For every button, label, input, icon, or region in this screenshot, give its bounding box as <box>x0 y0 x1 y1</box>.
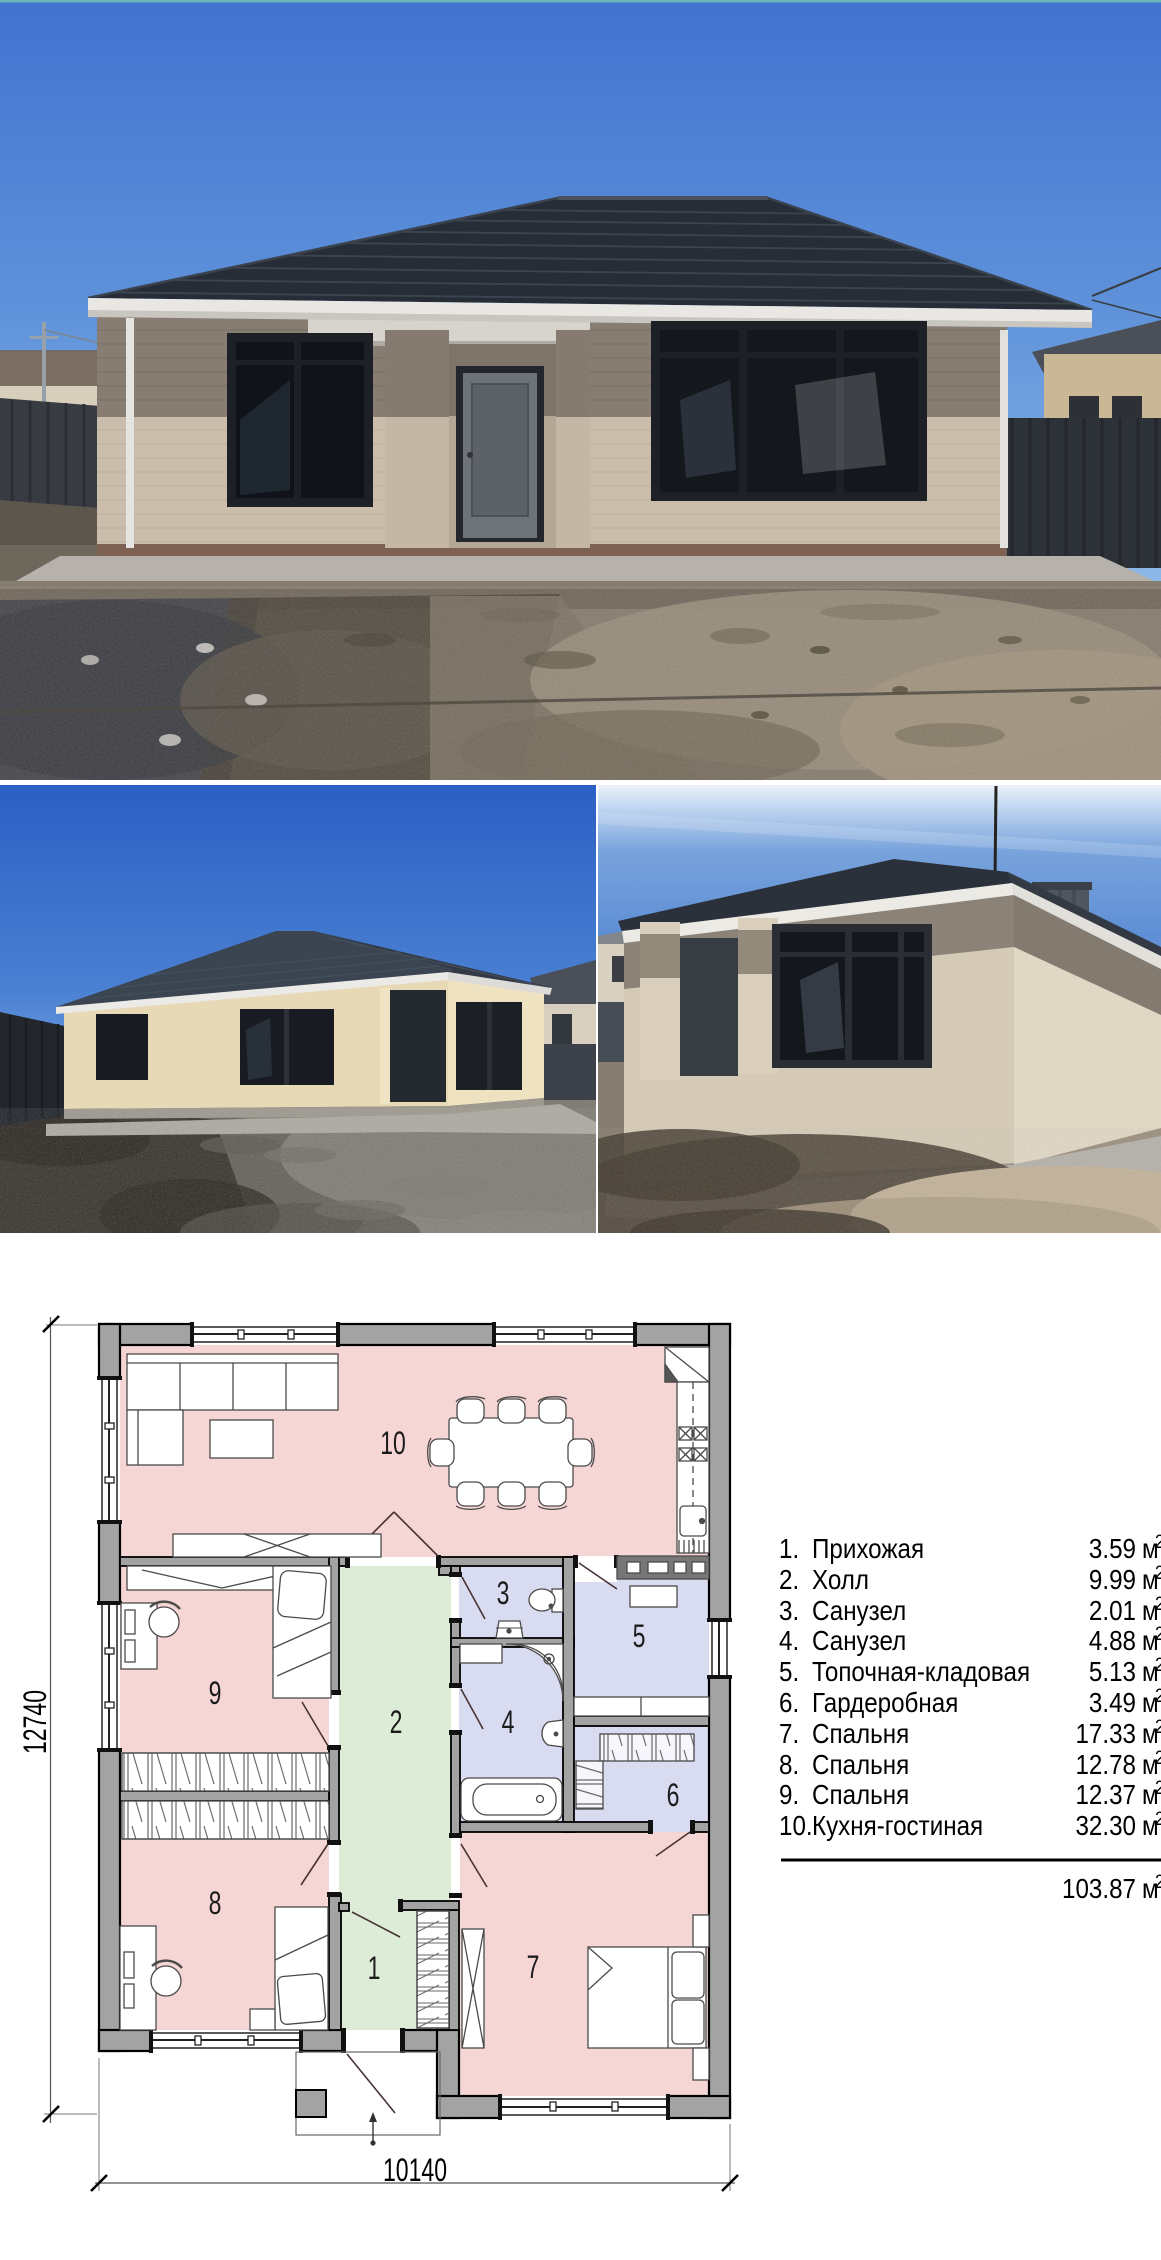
svg-text:2: 2 <box>1155 1747 1161 1768</box>
svg-text:6: 6 <box>667 1777 680 1813</box>
svg-text:6.: 6. <box>779 1689 799 1719</box>
svg-text:2: 2 <box>1155 1716 1161 1737</box>
svg-text:5.: 5. <box>779 1658 799 1688</box>
svg-text:4.: 4. <box>779 1627 799 1657</box>
svg-text:8.: 8. <box>779 1751 799 1781</box>
svg-text:3.59: 3.59 <box>1089 1535 1136 1565</box>
svg-text:8: 8 <box>209 1885 222 1921</box>
svg-text:10: 10 <box>380 1425 406 1461</box>
svg-text:5.13: 5.13 <box>1089 1658 1136 1688</box>
svg-text:Гардеробная: Гардеробная <box>812 1689 958 1719</box>
svg-text:7.: 7. <box>779 1720 799 1750</box>
svg-text:2: 2 <box>1155 1623 1161 1644</box>
svg-text:2: 2 <box>1155 1685 1161 1706</box>
svg-text:9: 9 <box>209 1675 222 1711</box>
svg-text:5: 5 <box>633 1618 646 1654</box>
svg-text:2: 2 <box>1155 1777 1161 1798</box>
svg-text:2: 2 <box>1155 1593 1161 1614</box>
svg-text:10140: 10140 <box>383 2152 447 2188</box>
svg-text:3.49: 3.49 <box>1089 1689 1136 1719</box>
svg-text:Спальня: Спальня <box>812 1781 909 1811</box>
svg-text:2: 2 <box>1155 1871 1161 1892</box>
svg-text:17.33: 17.33 <box>1075 1720 1136 1750</box>
svg-text:10.: 10. <box>779 1812 813 1842</box>
svg-text:32.30: 32.30 <box>1075 1812 1136 1842</box>
svg-text:4.88: 4.88 <box>1089 1627 1136 1657</box>
svg-text:2: 2 <box>1155 1531 1161 1552</box>
svg-text:4: 4 <box>502 1704 515 1740</box>
svg-text:12740: 12740 <box>17 1690 53 1754</box>
svg-text:2.01: 2.01 <box>1089 1597 1136 1627</box>
svg-text:Топочная-кладовая: Топочная-кладовая <box>812 1658 1030 1688</box>
svg-text:2: 2 <box>390 1704 403 1740</box>
svg-text:9.99: 9.99 <box>1089 1566 1136 1596</box>
svg-text:12.37: 12.37 <box>1075 1781 1136 1811</box>
svg-text:9.: 9. <box>779 1781 799 1811</box>
svg-text:103.87: 103.87 <box>1062 1875 1136 1905</box>
svg-text:Кухня-гостиная: Кухня-гостиная <box>812 1812 983 1842</box>
svg-text:12.78: 12.78 <box>1075 1751 1136 1781</box>
svg-text:2: 2 <box>1155 1562 1161 1583</box>
svg-text:2.: 2. <box>779 1566 799 1596</box>
svg-text:7: 7 <box>527 1949 540 1985</box>
svg-text:Спальня: Спальня <box>812 1751 909 1781</box>
svg-text:2: 2 <box>1155 1808 1161 1829</box>
svg-text:Спальня: Спальня <box>812 1720 909 1750</box>
svg-text:Прихожая: Прихожая <box>812 1535 924 1565</box>
svg-text:2: 2 <box>1155 1654 1161 1675</box>
svg-text:Холл: Холл <box>812 1566 869 1596</box>
svg-text:3: 3 <box>497 1575 510 1611</box>
svg-text:3.: 3. <box>779 1597 799 1627</box>
svg-text:Санузел: Санузел <box>812 1597 906 1627</box>
svg-text:1: 1 <box>368 1950 381 1986</box>
svg-text:1.: 1. <box>779 1535 799 1565</box>
svg-text:Санузел: Санузел <box>812 1627 906 1657</box>
